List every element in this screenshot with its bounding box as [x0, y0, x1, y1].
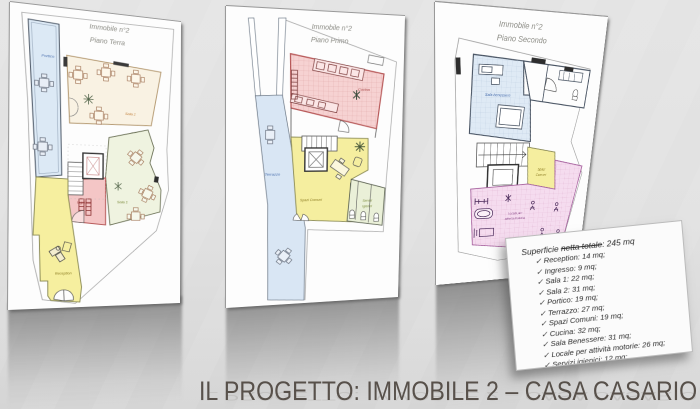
- svg-text:Spazi: Spazi: [537, 168, 546, 172]
- svg-text:Terrazzo: Terrazzo: [265, 172, 281, 177]
- svg-text:Servizi: Servizi: [363, 199, 373, 203]
- svg-text:Spazi Comuni: Spazi Comuni: [300, 197, 322, 202]
- svg-text:Cucina: Cucina: [358, 87, 370, 92]
- svg-text:igienici: igienici: [362, 205, 372, 209]
- svg-text:Reception: Reception: [55, 272, 72, 276]
- svg-text:Sala 2: Sala 2: [125, 111, 136, 116]
- svg-text:Comuni: Comuni: [535, 173, 546, 177]
- svg-text:Sala 1: Sala 1: [117, 200, 128, 205]
- svg-text:Sala benessere: Sala benessere: [485, 93, 511, 98]
- svg-text:Locale per: Locale per: [508, 211, 523, 215]
